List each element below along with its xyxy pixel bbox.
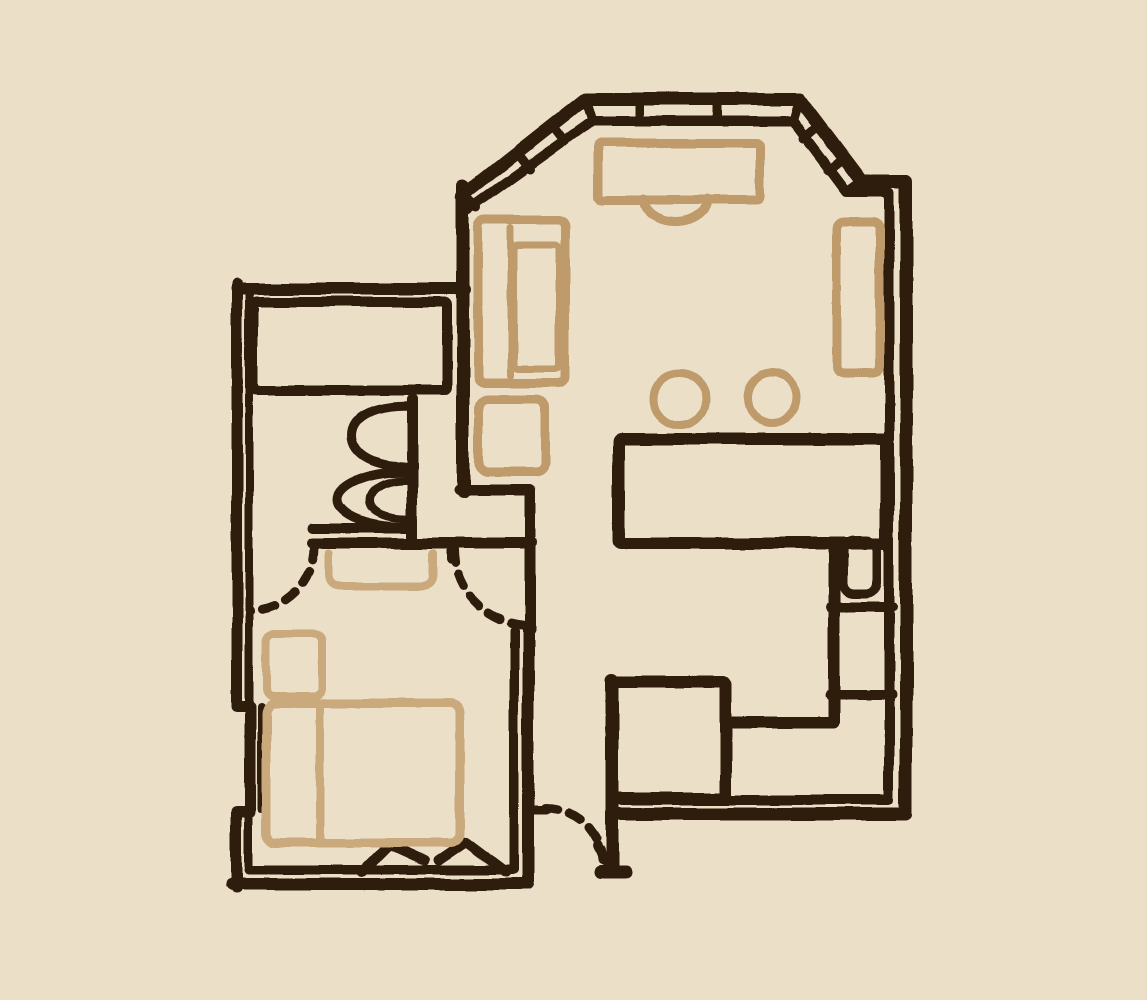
stool-2 (747, 373, 797, 423)
bathroom-closet (253, 302, 447, 390)
stool-1 (654, 373, 706, 425)
entry-door-arc (545, 808, 602, 860)
nightstand (266, 634, 322, 696)
side-table (479, 399, 545, 472)
kitchen-counter (619, 439, 886, 543)
bedroom-door-arc-right (454, 550, 530, 626)
kitchen-divider-wall (733, 543, 834, 722)
sofa-cushion (514, 245, 559, 369)
utility-shaft (612, 682, 726, 798)
door-mat (329, 553, 433, 586)
floor-plan-shapes (233, 99, 906, 888)
entry-wall (600, 680, 626, 872)
floor-plan-svg (0, 0, 1147, 1000)
sideboard (837, 222, 880, 373)
toilet (352, 406, 412, 466)
bidet-inner (370, 480, 412, 518)
bedroom-door-arc-left (250, 547, 314, 611)
floor-plan-canvas (0, 0, 1147, 1000)
desk (598, 143, 760, 200)
bed (266, 703, 460, 843)
bedroom-inner-wall (249, 631, 514, 870)
